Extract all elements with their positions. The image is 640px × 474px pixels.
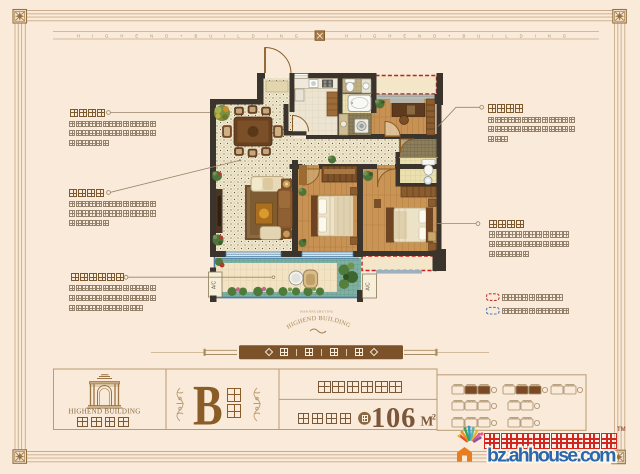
svg-text:HIGHEND+BUILDING: HIGHEND+BUILDING: [77, 34, 307, 39]
svg-text:2: 2: [432, 413, 436, 422]
svg-text:HANJINGZHUTING: HANJINGZHUTING: [300, 310, 334, 314]
svg-text:106: 106: [371, 403, 416, 434]
svg-text:HIGHEND BUILDING: HIGHEND BUILDING: [68, 408, 140, 416]
svg-text:B: B: [193, 374, 223, 438]
svg-text:HIGHEND+BUILDING: HIGHEND+BUILDING: [345, 34, 575, 39]
svg-text:A/C: A/C: [212, 280, 218, 289]
svg-text:HIGHEND BUILDING: HIGHEND BUILDING: [286, 315, 352, 331]
svg-text:bz.ahhouse.com: bz.ahhouse.com: [487, 444, 616, 466]
svg-text:A/C: A/C: [366, 282, 372, 291]
